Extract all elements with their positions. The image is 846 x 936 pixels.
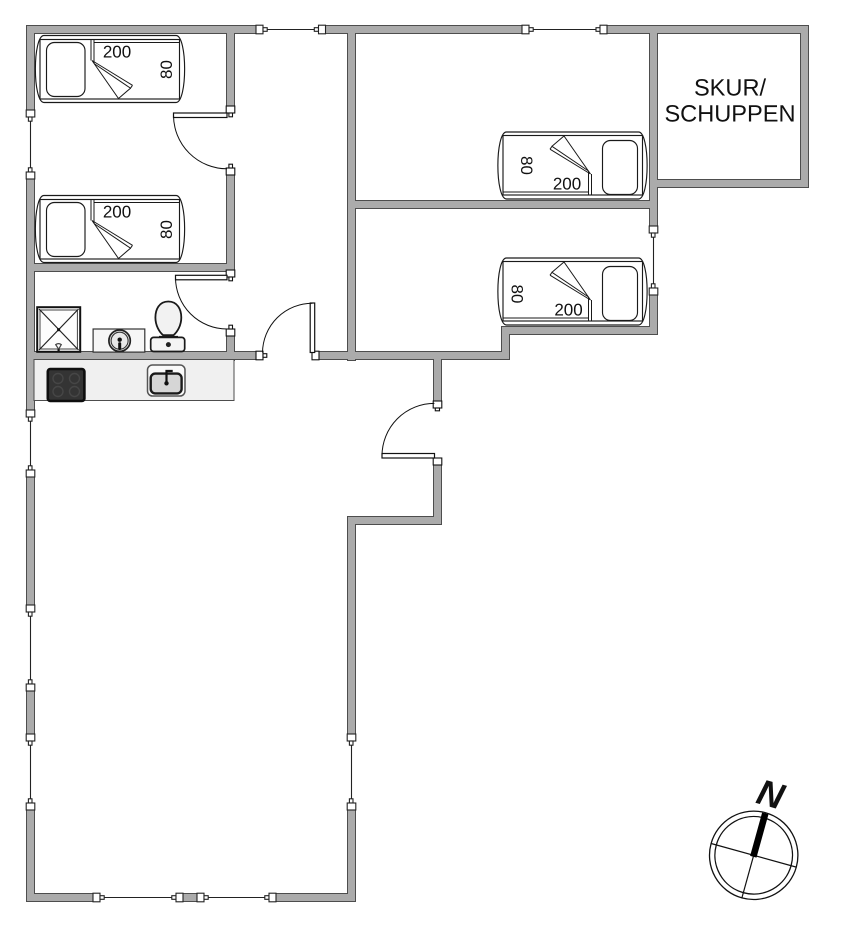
svg-text:200: 200 — [103, 42, 131, 61]
svg-text:80: 80 — [517, 156, 536, 175]
svg-text:200: 200 — [554, 300, 582, 319]
svg-text:80: 80 — [508, 285, 527, 304]
svg-text:200: 200 — [553, 174, 581, 193]
svg-text:80: 80 — [157, 60, 176, 79]
svg-text:80: 80 — [157, 220, 176, 239]
svg-text:200: 200 — [103, 202, 131, 221]
svg-text:SCHUPPEN: SCHUPPEN — [664, 101, 795, 127]
svg-text:SKUR/: SKUR/ — [694, 75, 767, 101]
